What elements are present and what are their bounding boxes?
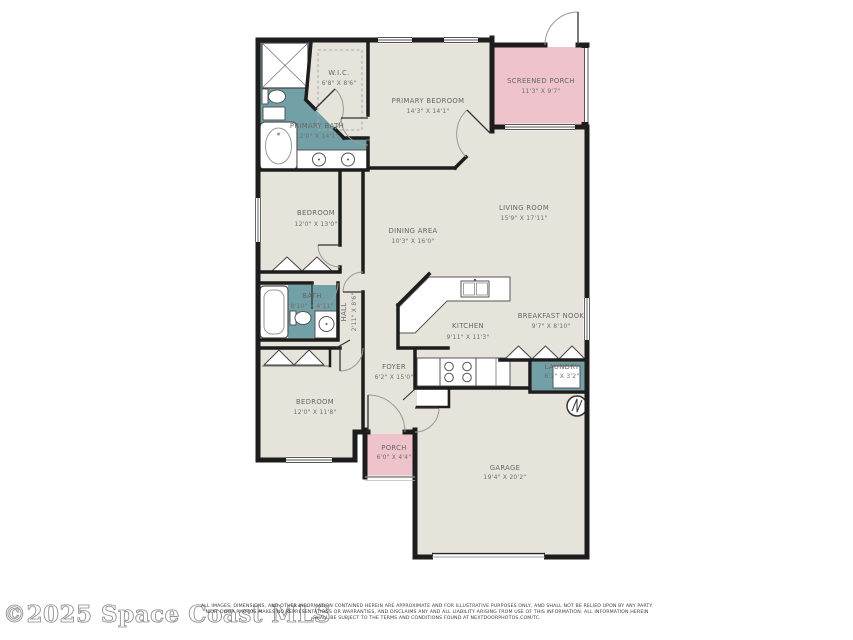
sink-icon [315,311,338,338]
disclaimer-line-2: NEXT DOOR PHOTOS MAKES NO REPRESENTATION… [205,609,648,615]
window-icon [255,198,262,242]
room-name: FOYER [382,363,406,371]
room-dims: 14'3" X 14'1" [407,108,450,115]
room-dims: 12'0" X 13'0" [295,221,338,228]
water-heater-icon [567,396,587,416]
room-name: PORCH [381,444,406,452]
window-icon [378,37,412,44]
room-name: W.I.C. [328,69,349,77]
room-dims: 6'2" X 15'0" [375,374,414,381]
room-name: LAUNDRY [545,363,580,371]
room-name: KITCHEN [452,322,484,330]
room-dims: 6'0" X 4'4" [377,454,412,461]
room-dims: 6'2" X 3'2" [545,373,580,380]
room-name: HALL [340,303,348,322]
footer: ©2025 Space Coast MLS ALL IMAGES, DIMENS… [3,601,653,628]
range-icon [440,358,476,386]
screened-porch-floor [494,47,585,125]
room-dims: 19'4" X 20'2" [484,474,527,481]
room-name: BEDROOM [296,398,334,406]
room-dims: 9'7" X 8'10" [532,323,571,330]
room-dims: 11'3" X 9'7" [522,88,561,95]
bath-seat [263,107,285,120]
toilet-icon [262,89,286,104]
room-dims: 12'0" X 11'8" [294,409,337,416]
room-name: BATH [302,292,321,300]
room-name: SCREENED PORCH [507,77,575,85]
room-dims: 12'0" X 14'1" [296,133,339,140]
double-vanity-icon [297,150,367,169]
room-dims: 9'11" X 11'3" [447,334,490,341]
room-name: GARAGE [490,464,521,472]
bay-window-icon [505,346,585,359]
window-icon [286,457,332,464]
garage-door [432,552,545,562]
room-dims: 15'9" X 17'11" [501,215,548,222]
room-dims: 2'11" X 8'6" [351,293,358,332]
room-name: LIVING ROOM [499,204,549,212]
room-name: PRIMARY BATH [290,122,344,130]
window-icon [505,124,575,131]
toilet-icon [290,311,311,325]
shower-icon [262,43,308,88]
disclaimer-line-1: ALL IMAGES, DIMENSIONS, AND OTHER INFORM… [201,603,653,609]
room-name: BREAKFAST NOOK [518,312,585,320]
room-dims: 6'8" X 8'6" [322,80,357,87]
room-name: BEDROOM [297,209,335,217]
window-icon [444,37,478,44]
garage-closet [417,390,447,407]
floor-plan: W.I.C. 6'8" X 8'6" PRIMARY BEDROOM 14'3"… [0,0,853,640]
window-icon [584,298,591,340]
room-name: DINING AREA [388,227,437,235]
bathtub-icon [260,286,288,338]
room-dims: 10'3" X 16'0" [392,238,435,245]
kitchen-lower-counter [417,358,510,386]
disclaimer-line-3: SHALL BE SUBJECT TO THE TERMS AND CONDIT… [313,615,541,621]
room-dims: 8'10" X 4'11" [291,303,334,310]
floor-plan-page: W.I.C. 6'8" X 8'6" PRIMARY BEDROOM 14'3"… [0,0,853,640]
room-name: PRIMARY BEDROOM [392,97,465,105]
